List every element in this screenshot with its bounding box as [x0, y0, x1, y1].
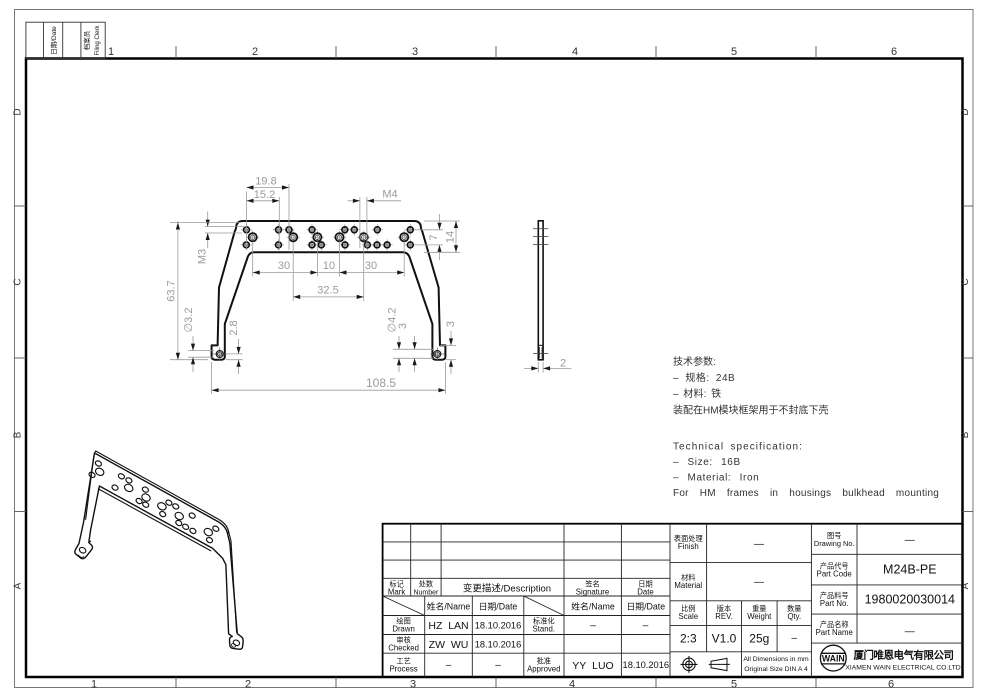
svg-text:日期/Date: 日期/Date: [479, 602, 518, 612]
svg-text:25g: 25g: [749, 632, 769, 646]
svg-text:3: 3: [397, 323, 409, 329]
svg-text:YY LUO: YY LUO: [572, 660, 613, 672]
svg-text:技术参数:: 技术参数:: [673, 355, 716, 368]
svg-text:–: –: [590, 621, 596, 632]
svg-text:18.10.2016: 18.10.2016: [475, 640, 522, 650]
svg-text:15.2: 15.2: [254, 189, 275, 201]
svg-text:Qty.: Qty.: [787, 612, 801, 621]
svg-text:Weight: Weight: [747, 612, 772, 621]
svg-text:Stand.: Stand.: [533, 625, 556, 634]
svg-text:—: —: [905, 627, 915, 638]
svg-text:C: C: [13, 278, 24, 285]
svg-text:– Size: 16B: – Size: 16B: [673, 457, 741, 468]
svg-text:3: 3: [445, 321, 457, 327]
svg-text:2: 2: [245, 679, 251, 691]
svg-text:Drawn: Drawn: [392, 625, 415, 634]
svg-text:D: D: [960, 108, 971, 115]
svg-text:Filing Clerk: Filing Clerk: [95, 25, 101, 56]
svg-text:Date: Date: [637, 588, 653, 597]
svg-text:变更描述/Description: 变更描述/Description: [463, 583, 551, 595]
svg-text:日期/Date: 日期/Date: [626, 602, 665, 612]
svg-text:日期/Date: 日期/Date: [50, 26, 58, 55]
svg-text:2: 2: [252, 46, 258, 58]
svg-text:XIAMEN WAIN ELECTRICAL CO.LTD: XIAMEN WAIN ELECTRICAL CO.LTD: [845, 664, 960, 671]
svg-text:– 材料: 铁: – 材料: 铁: [673, 387, 721, 400]
svg-text:∅3.2: ∅3.2: [183, 308, 195, 333]
svg-text:Number: Number: [413, 590, 439, 597]
svg-text:63.7: 63.7: [166, 280, 178, 301]
svg-text:Original Size DIN A 4: Original Size DIN A 4: [744, 666, 808, 673]
svg-text:30: 30: [278, 260, 290, 272]
svg-text:4: 4: [569, 679, 575, 691]
svg-text:–: –: [643, 621, 649, 632]
svg-text:REV.: REV.: [715, 612, 732, 621]
svg-text:B: B: [960, 431, 971, 438]
svg-text:6: 6: [888, 679, 894, 691]
svg-text:7: 7: [428, 234, 440, 240]
svg-text:2: 2: [560, 358, 566, 370]
svg-text:1: 1: [91, 679, 97, 691]
svg-text:ZW WU: ZW WU: [429, 639, 469, 651]
svg-text:14: 14: [444, 231, 456, 243]
svg-text:5: 5: [731, 679, 737, 691]
svg-text:Part No.: Part No.: [820, 599, 849, 608]
svg-text:For HM frames in housings bulk: For HM frames in housings bulkhead mount…: [673, 488, 939, 499]
svg-text:Signature: Signature: [576, 588, 609, 597]
svg-text:–: –: [446, 660, 452, 671]
svg-text:1980020030014: 1980020030014: [865, 593, 955, 607]
svg-text:姓名/Name: 姓名/Name: [427, 601, 471, 612]
svg-text:D: D: [13, 108, 24, 115]
svg-text:2:3: 2:3: [680, 632, 697, 646]
svg-text:厦门唯恩电气有限公司: 厦门唯恩电气有限公司: [854, 649, 954, 662]
svg-text:V1.0: V1.0: [712, 632, 737, 646]
svg-text:2.8: 2.8: [228, 320, 240, 335]
svg-text:Process: Process: [390, 665, 418, 674]
svg-text:3: 3: [412, 46, 418, 58]
svg-text:Scale: Scale: [679, 612, 699, 621]
svg-text:姓名/Name: 姓名/Name: [571, 601, 615, 612]
svg-text:18.10.2016: 18.10.2016: [623, 660, 670, 670]
svg-text:装配在HM模块框架用于不封底下壳: 装配在HM模块框架用于不封底下壳: [673, 404, 829, 417]
svg-text:All Dimensions in mm: All Dimensions in mm: [743, 656, 809, 663]
svg-text:处数: 处数: [419, 580, 433, 589]
svg-text:3: 3: [410, 679, 416, 691]
svg-text:C: C: [960, 278, 971, 285]
svg-text:19.8: 19.8: [255, 176, 276, 188]
svg-text:10: 10: [323, 260, 335, 272]
svg-text:M4: M4: [382, 189, 397, 201]
svg-text:Part Code: Part Code: [817, 570, 852, 579]
svg-text:–: –: [495, 660, 501, 671]
svg-text:—: —: [905, 535, 915, 546]
svg-text:Technical specification:: Technical specification:: [673, 442, 803, 453]
svg-text:Finish: Finish: [678, 542, 699, 551]
svg-text:108.5: 108.5: [366, 376, 396, 390]
svg-text:Drawing No.: Drawing No.: [814, 539, 855, 548]
svg-text:–: –: [792, 633, 798, 644]
svg-text:M24B-PE: M24B-PE: [883, 563, 937, 577]
svg-text:—: —: [754, 539, 764, 550]
svg-text:Material: Material: [674, 581, 702, 590]
svg-text:Checked: Checked: [388, 644, 419, 653]
svg-text:B: B: [13, 431, 24, 438]
svg-text:1: 1: [108, 46, 114, 58]
svg-text:6: 6: [891, 46, 897, 58]
svg-text:– Material: Iron: – Material: Iron: [673, 473, 759, 484]
svg-text:A: A: [13, 582, 24, 589]
svg-text:WAIN: WAIN: [822, 654, 845, 664]
svg-text:档案员: 档案员: [82, 30, 91, 50]
svg-text:– 规格: 24B: – 规格: 24B: [673, 371, 735, 384]
svg-text:Approved: Approved: [527, 665, 560, 674]
svg-text:32.5: 32.5: [317, 285, 338, 297]
svg-text:4: 4: [572, 46, 578, 58]
svg-text:18.10.2016: 18.10.2016: [475, 621, 522, 631]
svg-text:Part Name: Part Name: [816, 628, 853, 637]
svg-text:5: 5: [731, 46, 737, 58]
svg-text:—: —: [754, 577, 764, 588]
svg-text:30: 30: [365, 260, 377, 272]
svg-text:Mark: Mark: [388, 588, 405, 597]
svg-text:HZ LAN: HZ LAN: [428, 620, 468, 632]
svg-text:M3: M3: [197, 249, 209, 264]
